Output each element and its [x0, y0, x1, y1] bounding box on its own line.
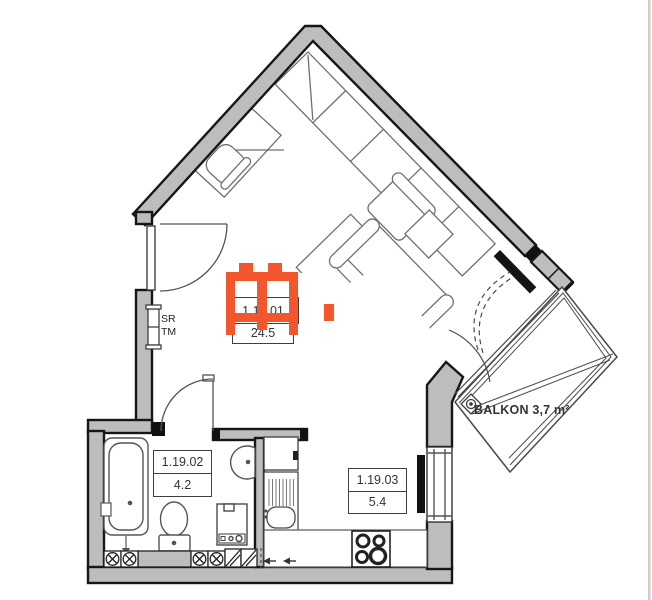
balcony	[455, 287, 617, 472]
bathroom-sink	[231, 446, 255, 479]
room-bathroom-number: 1.19.02	[154, 451, 211, 474]
meter-tags: SR TM	[161, 313, 176, 339]
meter-tag-sr: SR	[161, 313, 176, 326]
meter-tag-tm: TM	[161, 326, 176, 339]
washing-machine	[217, 504, 247, 545]
room-kitchen-area: 5.4	[349, 492, 406, 514]
room-label-bathroom: 1.19.02 4.2	[153, 450, 212, 497]
bathtub	[101, 438, 148, 556]
floor-plan: 1.19.01 24.5 1.19.02 4.2 1.19.03 5.4 BAL…	[0, 0, 652, 600]
floor-symbols	[104, 548, 261, 568]
fridge	[264, 437, 298, 470]
entry-door	[147, 224, 227, 291]
window-radiator	[417, 455, 425, 513]
window	[427, 447, 452, 522]
meter-box	[146, 305, 161, 349]
room-bathroom-area: 4.2	[154, 474, 211, 496]
stove	[352, 531, 390, 567]
watermark-logo-icon	[224, 263, 339, 339]
bathroom-door	[161, 375, 214, 431]
balcony-label: BALKON 3,7 m²	[474, 403, 570, 417]
kitchen-sink	[264, 472, 298, 531]
image-edge	[648, 0, 651, 600]
balcony-wall-stub	[531, 251, 573, 293]
room-kitchen-number: 1.19.03	[349, 469, 406, 492]
toilet	[159, 502, 190, 551]
room-label-kitchen: 1.19.03 5.4	[348, 468, 407, 514]
